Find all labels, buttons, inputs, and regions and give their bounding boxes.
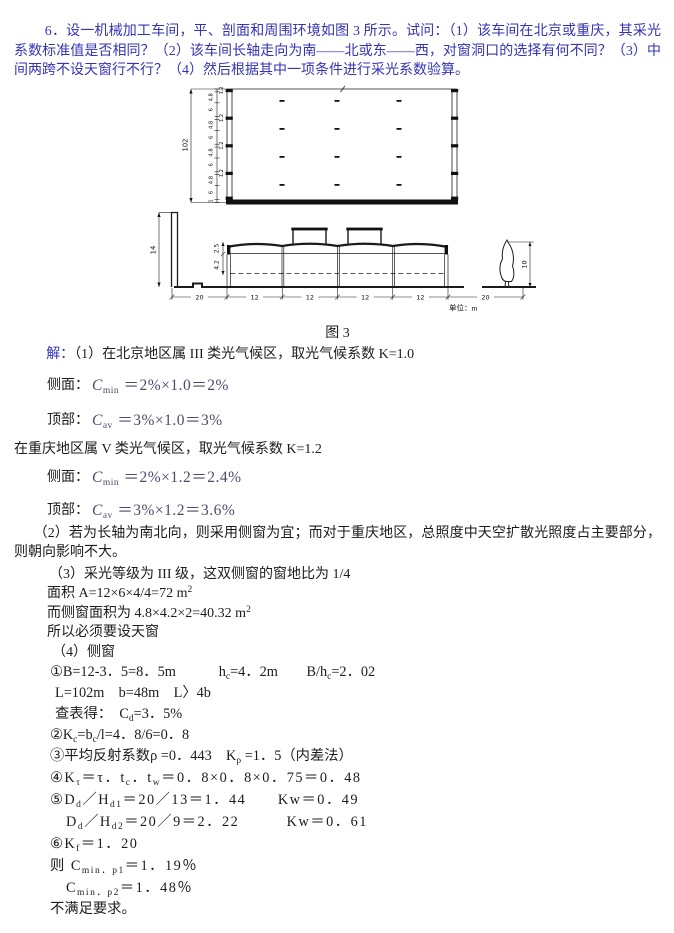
- dim-label: 1: [209, 199, 215, 202]
- dim-label: 4.8: [209, 148, 215, 156]
- skylight-needed-line: 所以必须要设天窗: [47, 623, 661, 643]
- column-marks: [280, 100, 402, 186]
- solution-part4-text: （4）侧窗: [52, 643, 661, 663]
- dim-label: 1.2: [219, 141, 225, 149]
- result-2-line: Cmin．p2＝1．48％: [66, 877, 661, 899]
- window-dim-label: 4.2: [214, 260, 221, 270]
- dim-label: 6: [209, 135, 215, 138]
- floor-area-line: 面积 A=12×6×4/4=72 m2: [47, 584, 661, 604]
- dim-label: 4.8: [209, 175, 215, 183]
- formula-side-chongqing: 侧面： Cmin ＝2%×1.2＝2.4%: [47, 464, 661, 488]
- dim-label: 1.2: [219, 86, 225, 94]
- step-2-line: ②Kc=bc/l=4．8/6=0．8: [50, 725, 661, 746]
- solution-intro: 解：（1）在北京地区属 III 类光气候区，取光气候系数 K=1.0: [14, 345, 661, 365]
- plan-total-dim-label: 102: [182, 138, 190, 151]
- dim-label: 4.8: [209, 93, 215, 101]
- plan-dimensions: 1.2 4.8 6 1.2 4.8 6 1.2 4.8 6 1.2 4.8 6 …: [182, 86, 228, 202]
- figure-3-drawing: 1.2 4.8 6 1.2 4.8 6 1.2 4.8 6 1.2 4.8 6 …: [146, 85, 541, 320]
- upper-dim-label: 2.5: [214, 243, 221, 253]
- step-6-line: ⑥Kf＝1．20: [50, 833, 661, 855]
- question-text: 6．设一机械加工车间，平、剖面和周围环境如图 3 所示。试问：（1）该车间在北京…: [14, 22, 661, 81]
- dim-label: 4.8: [209, 120, 215, 128]
- section-dimensions: 14 2.5 4.2: [150, 212, 535, 301]
- span-dim-label: 12: [416, 293, 424, 301]
- tree: [500, 240, 514, 287]
- span-dim-label: 12: [306, 293, 314, 301]
- neighbor-wall: [172, 212, 178, 287]
- step-5a-line: ⑤Dd／Hd1＝20／13＝1．44 Kw＝0．49: [50, 789, 661, 811]
- solution-part3-text: （3）采光等级为 III 级，这双侧窗的窗地比为 1/4: [14, 565, 661, 585]
- step-1b-line: L=102m b=48m L〉4b: [55, 683, 661, 704]
- tree-height-label: 10: [521, 260, 529, 268]
- span-dim-label: 12: [250, 293, 258, 301]
- formula-top-beijing: 顶部： Cav ＝3%×1.0＝3%: [47, 407, 661, 431]
- step-4-line: ④Kτ＝τ．tc．tw＝0．8×0．8×0．75＝0．48: [50, 767, 661, 789]
- solution-label: 解：: [46, 347, 74, 362]
- section-view: [172, 212, 537, 287]
- dim-label: 1.2: [219, 169, 225, 177]
- figure-caption: 图 3: [14, 322, 661, 342]
- formula-top-chongqing: 顶部： Cav ＝3%×1.2＝3.6%: [47, 497, 661, 521]
- formula-cmin-chongqing: Cmin ＝2%×1.2＝2.4%: [92, 465, 242, 487]
- span-dim-label: 20: [195, 293, 203, 301]
- wall-piers: [226, 89, 459, 200]
- solution-part2-text: （2）若为长轴为南北向，则采用侧窗为宜；而对于重庆地区，总照度中天空扩散光照度占…: [14, 524, 661, 563]
- dim-label: 1.2: [219, 113, 225, 121]
- section-columns: [282, 246, 395, 287]
- formula-cmin-beijing: Cmin ＝2%×1.0＝2%: [92, 373, 229, 395]
- neighbor-height-label: 14: [150, 245, 158, 254]
- step-3-line: ③平均反射系数ρ =0．443 Kρ =1．5（内差法）: [50, 746, 661, 767]
- step-1-line: ①B=12-3．5=8．5m hc=4．2m B/hc=2．02: [50, 662, 661, 683]
- span-dim-label: 12: [361, 293, 369, 301]
- formula-cav-chongqing: Cav ＝3%×1.2＝3.6%: [92, 498, 235, 520]
- plan-view: [226, 85, 459, 204]
- formula-cav-beijing: Cav ＝3%×1.0＝3%: [92, 408, 223, 430]
- span-dim-label: 20: [481, 293, 489, 301]
- document-page: 6．设一机械加工车间，平、剖面和周围环境如图 3 所示。试问：（1）该车间在北京…: [0, 0, 674, 933]
- step-1c-line: 查表得： Cd=3．5%: [55, 704, 661, 725]
- formula-side-beijing: 侧面： Cmin ＝2%×1.0＝2%: [47, 372, 661, 396]
- result-1-line: 则 Cmin．p1＝1．19％: [50, 855, 661, 877]
- ground-line: [174, 283, 464, 287]
- bottom-dim-chain: 20 12 12 12 12 20: [170, 288, 526, 302]
- side-window-area-line: 而侧窗面积为 4.8×4.2×2=40.32 m2: [47, 604, 661, 624]
- conclusion-line: 不满足要求。: [50, 899, 661, 920]
- solution-part1-text: （1）在北京地区属 III 类光气候区，取光气候系数 K=1.0: [74, 347, 414, 362]
- unit-label: 单位：m: [449, 302, 477, 312]
- dim-label: 6: [209, 108, 215, 111]
- solution-chongqing-intro: 在重庆地区属 V 类光气候区，取光气候系数 K=1.2: [14, 440, 661, 460]
- step-5b-line: Dd／Hd2＝20／9＝2．22 Kw＝0．61: [66, 811, 661, 833]
- dim-label: 6: [209, 163, 215, 166]
- figure-svg: 1.2 4.8 6 1.2 4.8 6 1.2 4.8 6 1.2 4.8 6 …: [146, 85, 541, 320]
- dim-label: 6: [209, 190, 215, 193]
